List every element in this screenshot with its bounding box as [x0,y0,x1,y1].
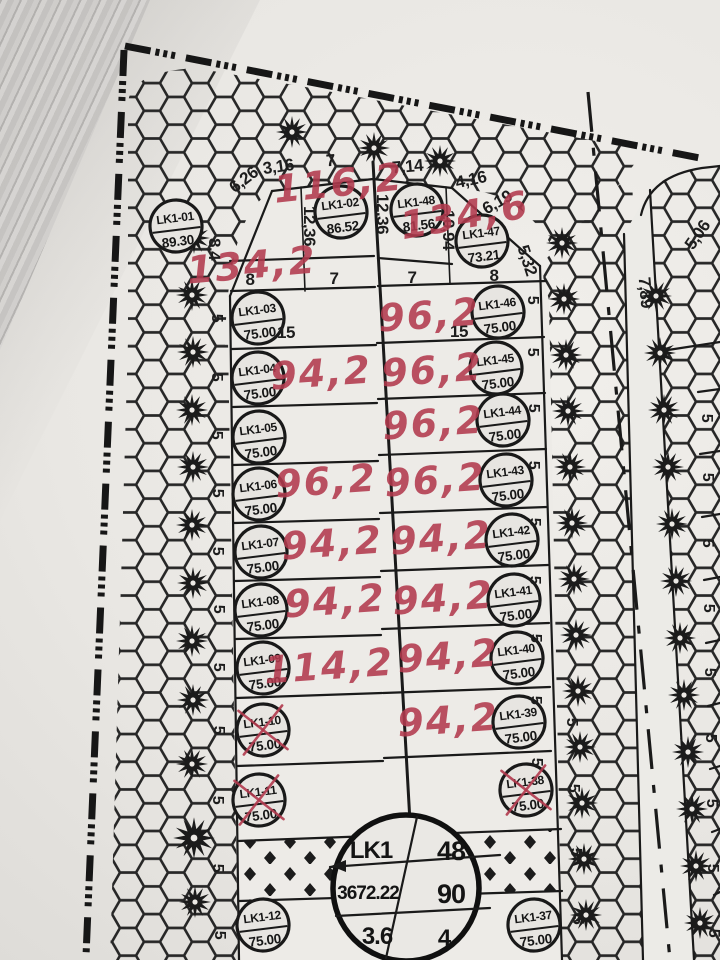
red-note: 94,2 [280,518,385,569]
side-dimension-label: 5 [701,668,718,677]
side-dimension-label: 5 [525,461,542,470]
side-dimension-label: 5 [699,473,716,482]
side-dimension-label: 5 [705,929,720,938]
dimension-label: 7 [330,269,339,288]
plan-photo: LK1 48 3672.22 90 3.6 4 LK1-0189.30LK1-0… [0,0,720,960]
side-dimension-label: 5 [211,931,228,940]
block-bottom-right: 4 [438,925,452,952]
side-dimension-label: 5 [699,539,716,548]
red-note: 96,2 [380,345,485,396]
side-dimension-label: 5 [209,547,226,556]
side-dimension-label: 5 [527,696,544,705]
dimension-label: 7,89 [635,276,657,309]
side-dimension-label: 5 [210,605,227,614]
side-dimension-label: 5 [526,518,543,527]
red-note: 114,2 [263,640,396,693]
dimension-label: 7 [408,268,417,287]
block-mid-right: 90 [437,879,465,909]
side-dimension-label: 5 [208,373,225,382]
block-code: LK1 [350,837,393,864]
side-dimension-label: 5 [569,916,586,925]
side-dimension-label: 5 [209,864,226,873]
block-bottom-left: 3.6 [362,923,393,950]
red-note: 94,2 [283,576,388,627]
side-dimension-label: 5 [565,784,582,793]
side-dimension-label: 5 [703,799,720,808]
dimension-label: 15 [277,323,295,342]
site-plan-drawing: LK1 48 3672.22 90 3.6 4 LK1-0189.30LK1-0… [0,0,720,960]
side-dimension-label: 5 [700,604,717,613]
side-dimension-label: 5 [526,576,543,585]
red-note: 96,2 [377,290,482,341]
side-dimension-label: 5 [698,414,715,423]
red-note: 94,2 [389,513,494,564]
red-note: 96,2 [274,456,379,507]
side-dimension-label: 5 [563,718,580,727]
side-dimension-label: 5 [527,634,544,643]
side-dimension-label: 5 [528,758,545,767]
red-note: 94,2 [269,348,374,399]
side-dimension-label: 5 [208,431,225,440]
side-dimension-label: 5 [524,296,541,305]
side-dimension-label: 5 [704,864,720,873]
red-note: 96,2 [383,455,488,506]
side-dimension-label: 5 [209,796,226,805]
side-dimension-label: 5 [702,734,719,743]
side-dimension-label: 5 [525,404,542,413]
side-dimension-label: 5 [209,489,226,498]
side-dimension-label: 5 [567,848,584,857]
red-note: 94,2 [396,631,501,682]
red-note: 96,2 [381,398,486,449]
block-lot-count: 48 [437,836,466,866]
side-dimension-label: 5 [524,348,541,357]
side-dimension-label: 5 [210,663,227,672]
side-dimension-label: 5 [208,314,225,323]
block-area: 3672.22 [337,883,399,904]
red-note: 94,2 [391,573,496,624]
side-dimension-label: 5 [210,726,227,735]
red-note: 94,2 [396,695,501,746]
dimension-label: 8 [490,266,499,285]
